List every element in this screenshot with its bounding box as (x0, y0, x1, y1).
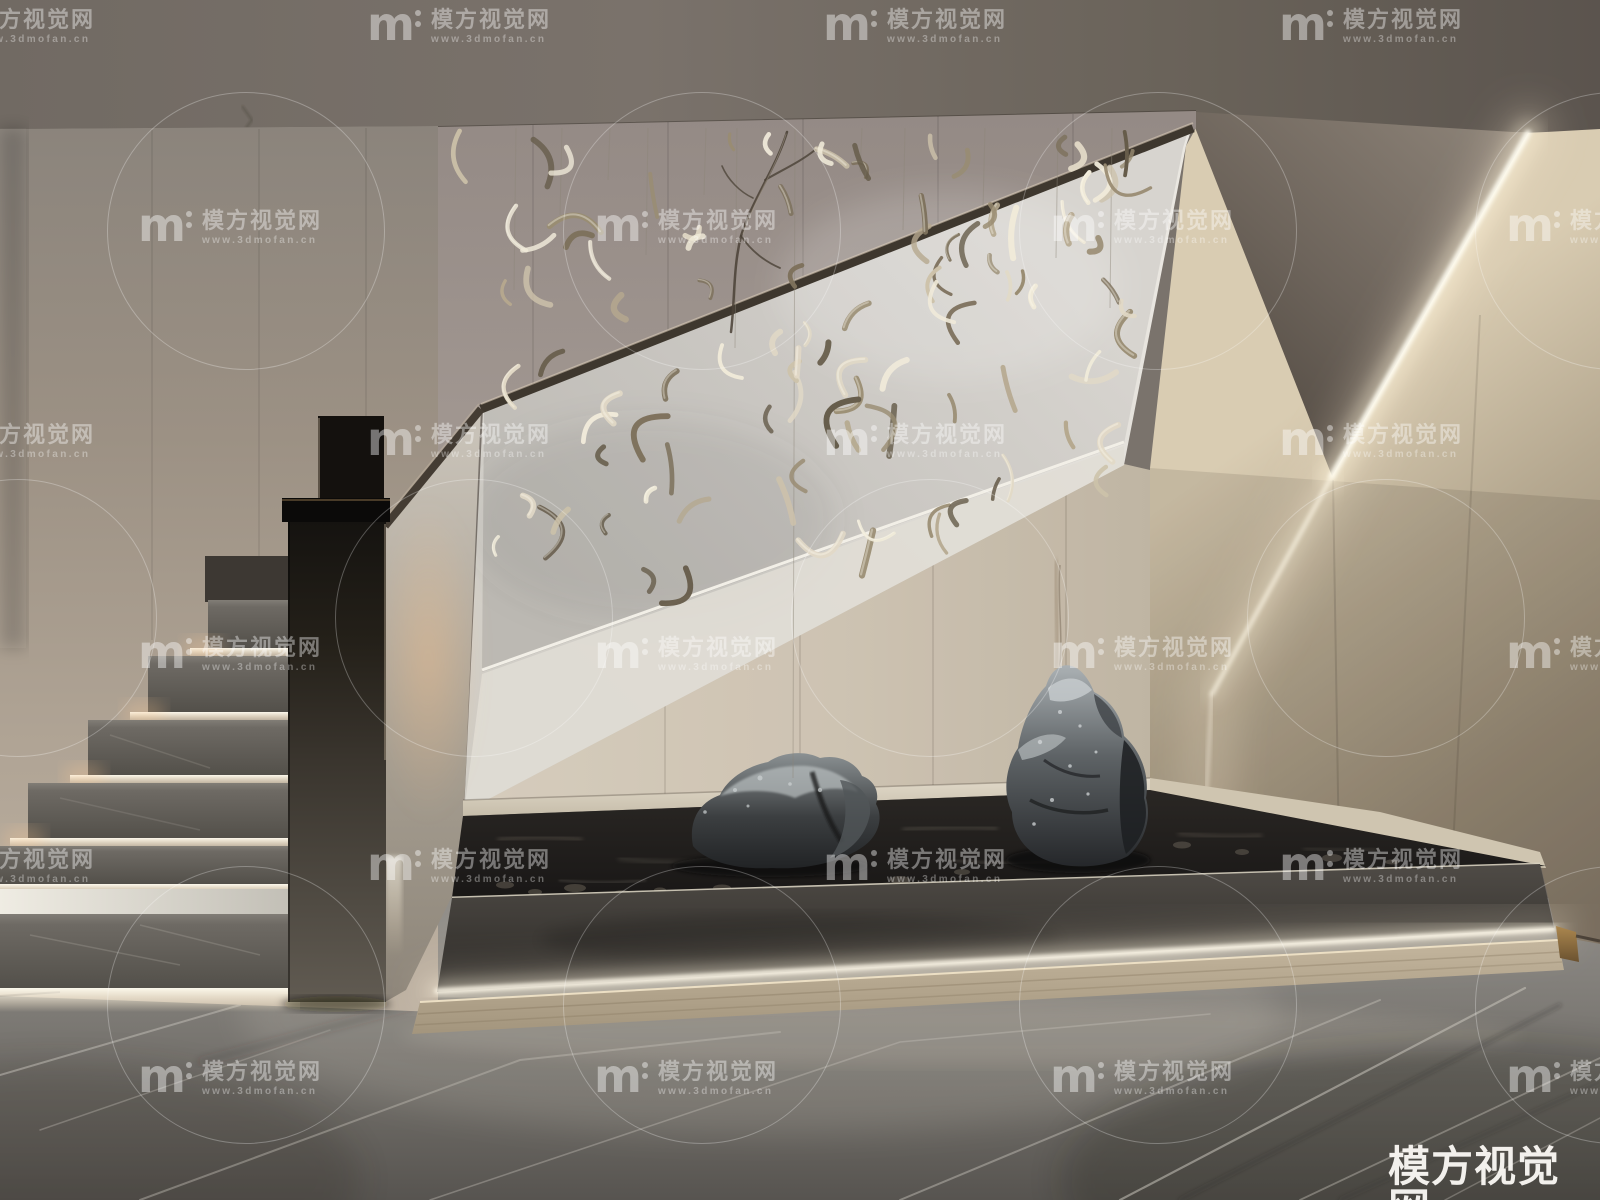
render-canvas: m模方视觉网www.3dmofan.cnm模方视觉网www.3dmofan.cn… (0, 0, 1600, 1200)
ceiling (0, 0, 1600, 132)
interior-scene (0, 0, 1600, 1200)
pillar-body (288, 522, 386, 1002)
bottom-plinth (0, 889, 300, 1012)
pillar (281, 416, 391, 1012)
upper-steps-shadow (205, 556, 292, 602)
corner-brand-mark: 模方视觉网 (1388, 1146, 1600, 1200)
step (0, 846, 292, 894)
step (62, 720, 292, 791)
wall-stain (1055, 560, 1058, 668)
pillar-cap (282, 498, 390, 522)
baseboard-light (386, 856, 402, 956)
pillar-blade (318, 416, 384, 502)
step (2, 783, 292, 854)
